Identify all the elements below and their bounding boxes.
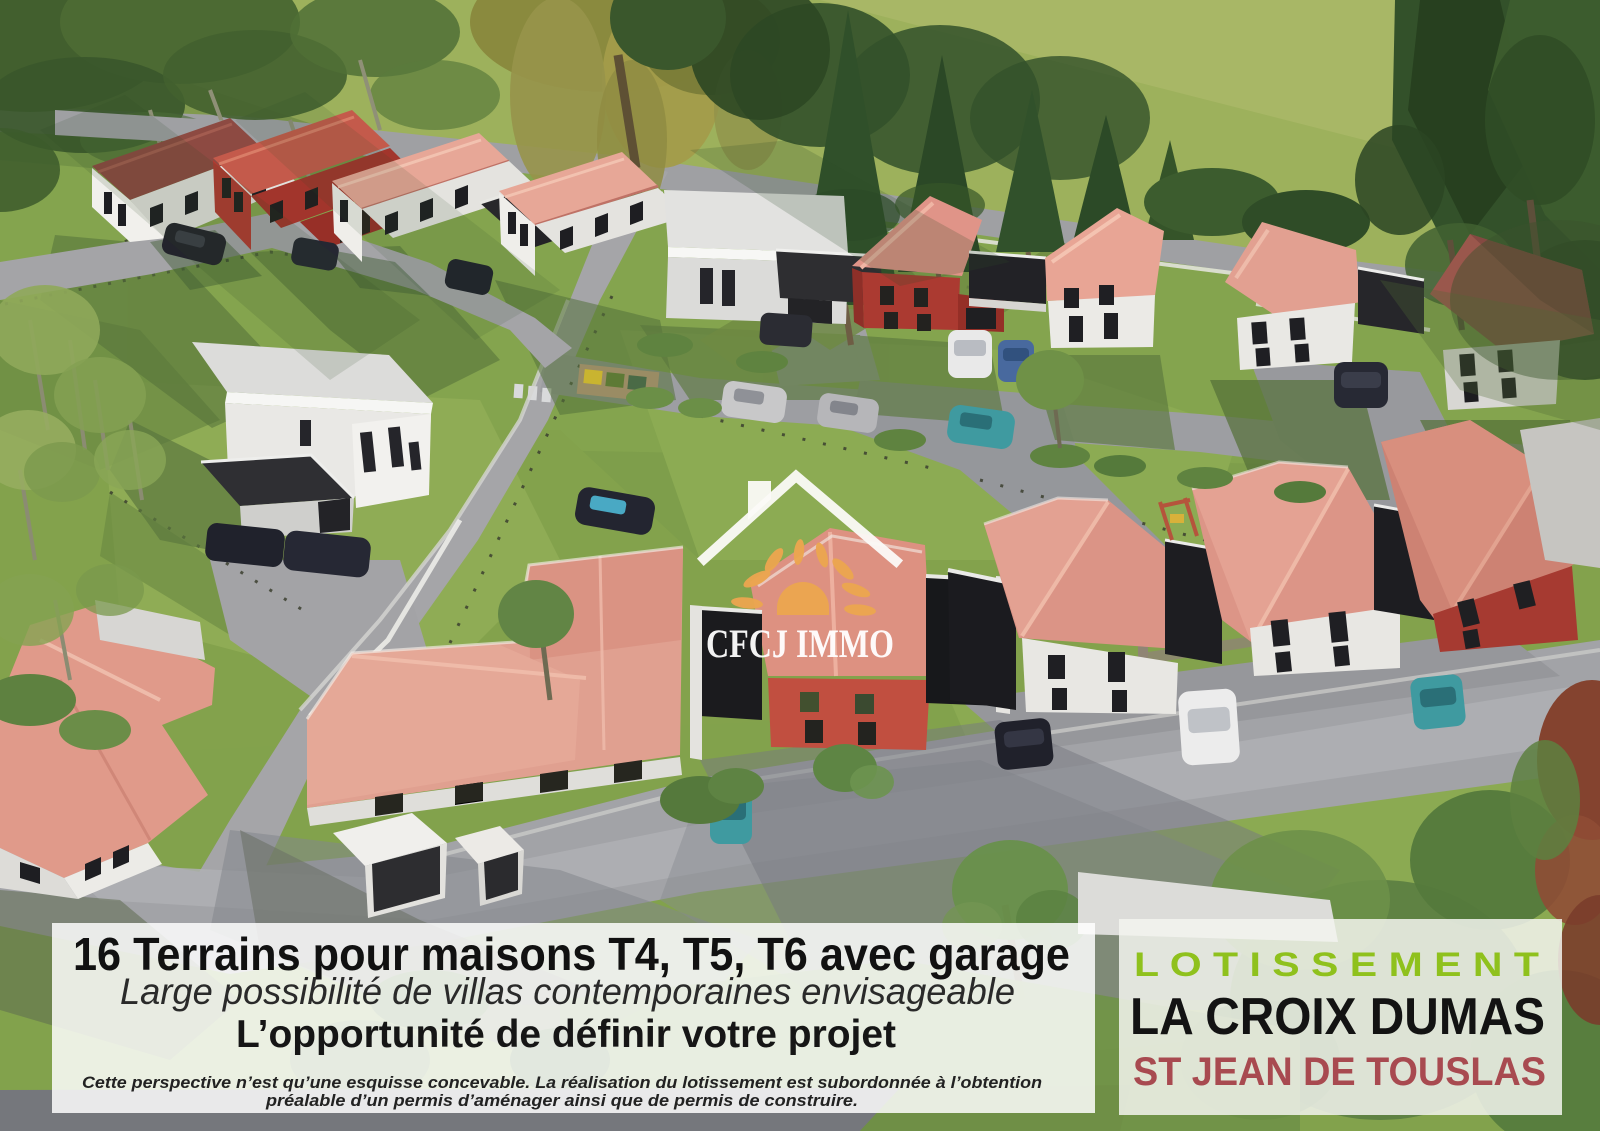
svg-text:préalable d’un permis d’aména: préalable d’un permis d’aménager ainsi q…: [265, 1092, 858, 1110]
svg-text:Large possibilité de villas co: Large possibilité de villas contemporain…: [120, 971, 1015, 1012]
svg-text:CFCJ IMMO: CFCJ IMMO: [706, 621, 894, 666]
svg-text:Cette perspective n’est qu’une: Cette perspective n’est qu’une esquisse …: [82, 1074, 1042, 1092]
svg-text:ST JEAN DE TOUSLAS: ST JEAN DE TOUSLAS: [1133, 1050, 1546, 1094]
svg-text:L O T I S S E M E N T: L O T I S S E M E N T: [1134, 946, 1539, 984]
svg-text:L’opportunité de définir votre: L’opportunité de définir votre projet: [236, 1013, 896, 1056]
svg-text:LA CROIX DUMAS: LA CROIX DUMAS: [1130, 988, 1545, 1046]
